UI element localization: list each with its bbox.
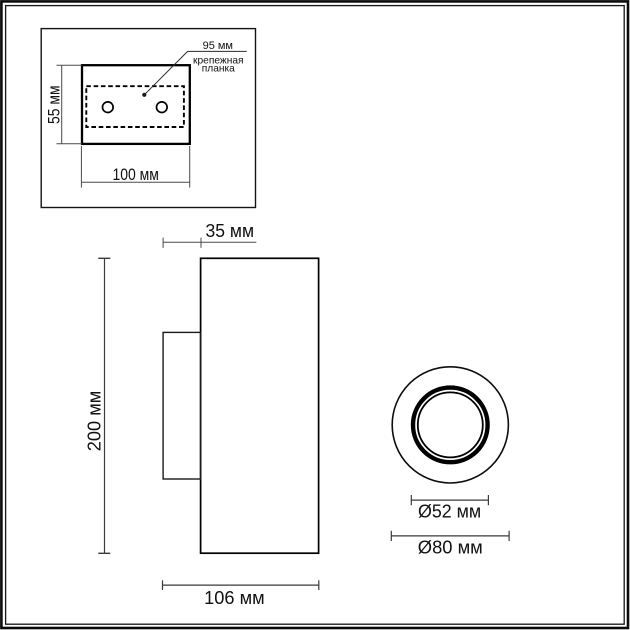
svg-text:35 мм: 35 мм: [206, 220, 255, 241]
svg-text:200 мм: 200 мм: [84, 391, 105, 452]
svg-text:100 мм: 100 мм: [112, 166, 159, 184]
svg-text:Ø80 мм: Ø80 мм: [418, 537, 483, 558]
svg-text:106 мм: 106 мм: [204, 587, 265, 608]
svg-text:планка: планка: [202, 64, 235, 75]
svg-text:55 мм: 55 мм: [44, 85, 63, 124]
svg-text:Ø52 мм: Ø52 мм: [418, 500, 481, 521]
svg-text:95 мм: 95 мм: [203, 40, 233, 52]
